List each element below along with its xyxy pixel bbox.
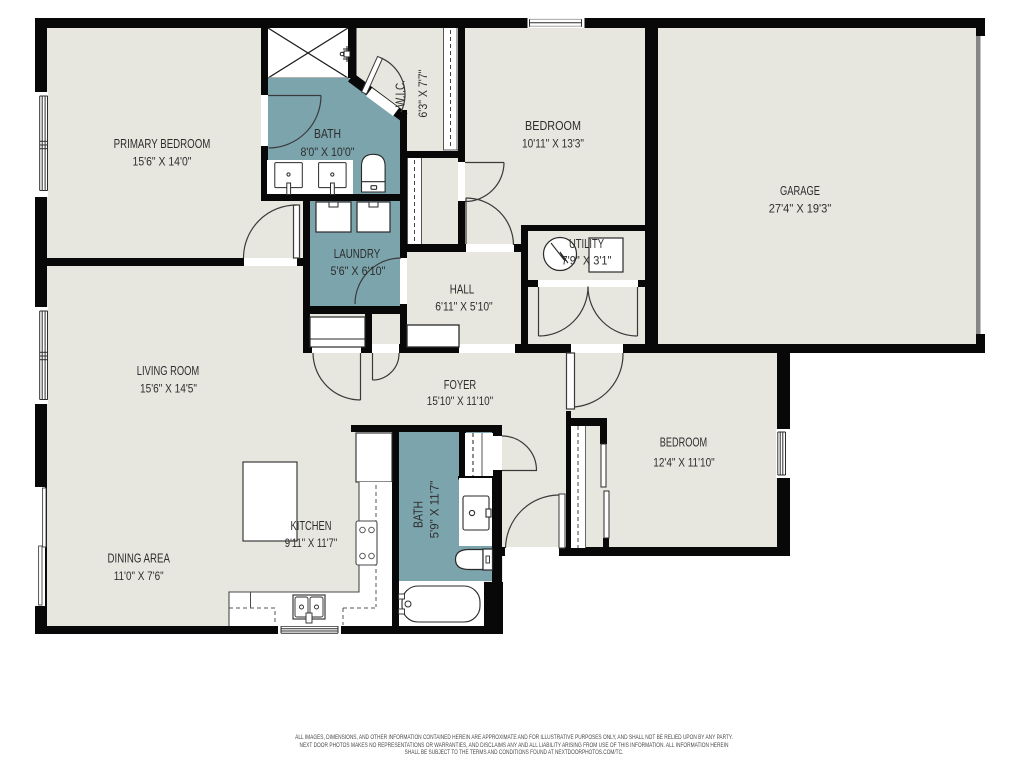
svg-text:6'3" X 7'7": 6'3" X 7'7" [417,70,430,118]
svg-text:LIVING ROOM: LIVING ROOM [137,365,199,379]
svg-text:LAUNDRY: LAUNDRY [334,248,381,261]
svg-text:UTILITY: UTILITY [569,238,605,252]
svg-text:GARAGE: GARAGE [780,185,820,199]
svg-text:5'9" X 11'7": 5'9" X 11'7" [428,481,441,539]
svg-text:ALL IMAGES, DIMENSIONS, AND OT: ALL IMAGES, DIMENSIONS, AND OTHER INFORM… [295,735,733,742]
svg-text:15'6" X 14'5": 15'6" X 14'5" [140,383,197,396]
svg-text:7'9" X 3'1": 7'9" X 3'1" [562,255,612,268]
svg-text:KITCHEN: KITCHEN [291,520,332,534]
svg-text:BATH: BATH [413,501,426,528]
svg-text:10'11" X 13'3": 10'11" X 13'3" [522,138,584,151]
svg-text:BATH: BATH [314,128,341,141]
svg-text:BEDROOM: BEDROOM [525,119,581,133]
svg-text:FOYER: FOYER [444,379,476,393]
svg-text:6'11" X 5'10": 6'11" X 5'10" [435,301,492,314]
svg-text:DINING AREA: DINING AREA [108,552,171,565]
svg-text:5'6" X 6'10": 5'6" X 6'10" [331,266,386,279]
svg-text:27'4" X 19'3": 27'4" X 19'3" [769,203,831,215]
svg-text:12'4" X 11'10": 12'4" X 11'10" [653,457,715,470]
svg-text:HALL: HALL [450,283,474,296]
svg-text:15'6" X 14'0": 15'6" X 14'0" [133,156,192,169]
svg-text:15'10" X 11'10": 15'10" X 11'10" [427,395,493,408]
svg-text:9'11" X 11'7": 9'11" X 11'7" [285,537,338,550]
svg-text:8'0" X 10'0": 8'0" X 10'0" [301,146,355,159]
svg-text:BEDROOM: BEDROOM [660,436,707,450]
svg-text:NEXT DOOR PHOTOS MAKES NO REPR: NEXT DOOR PHOTOS MAKES NO REPRESENTATION… [299,742,728,749]
svg-text:W.I.C.: W.I.C. [395,80,408,107]
svg-text:11'0" X 7'6": 11'0" X 7'6" [114,570,164,583]
svg-text:PRIMARY BEDROOM: PRIMARY BEDROOM [114,138,211,151]
svg-text:SHALL BE SUBJECT TO THE TERMS: SHALL BE SUBJECT TO THE TERMS AND CONDIT… [405,750,624,757]
